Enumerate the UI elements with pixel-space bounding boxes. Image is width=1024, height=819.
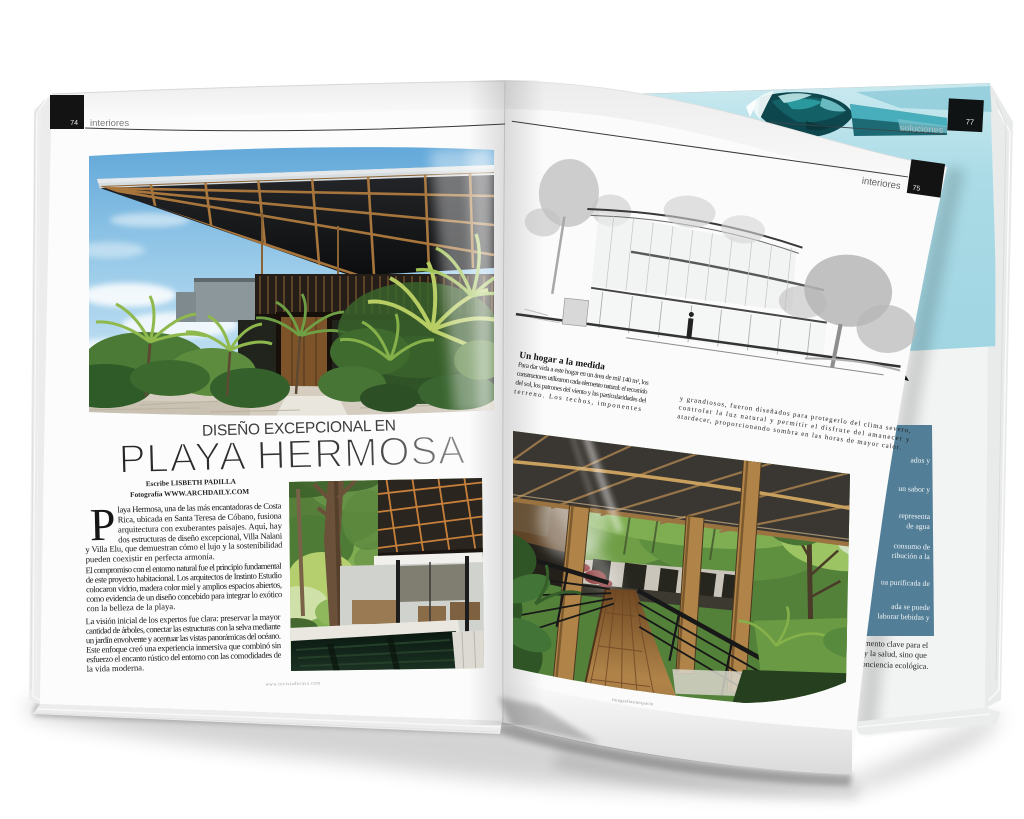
- svg-text:74: 74: [70, 120, 78, 127]
- svg-text:laborar bebidas y: laborar bebidas y: [877, 611, 930, 622]
- svg-text:P: P: [89, 499, 116, 551]
- svg-text:un sabor y: un sabor y: [898, 484, 930, 494]
- svg-text:75: 75: [912, 185, 921, 193]
- svg-text:la vida moderna.: la vida moderna.: [87, 662, 145, 673]
- svg-text:ua purificada de: ua purificada de: [881, 577, 931, 588]
- svg-text:representa: representa: [899, 511, 931, 521]
- svg-text:consumo de: consumo de: [893, 541, 930, 551]
- svg-text:ada se puede: ada se puede: [891, 602, 931, 612]
- svg-text:77: 77: [965, 117, 974, 126]
- svg-text:ribución a la: ribución a la: [892, 551, 931, 561]
- svg-text:de agua: de agua: [906, 521, 930, 531]
- svg-text:ados y: ados y: [910, 455, 930, 465]
- svg-text:interiores: interiores: [90, 118, 129, 129]
